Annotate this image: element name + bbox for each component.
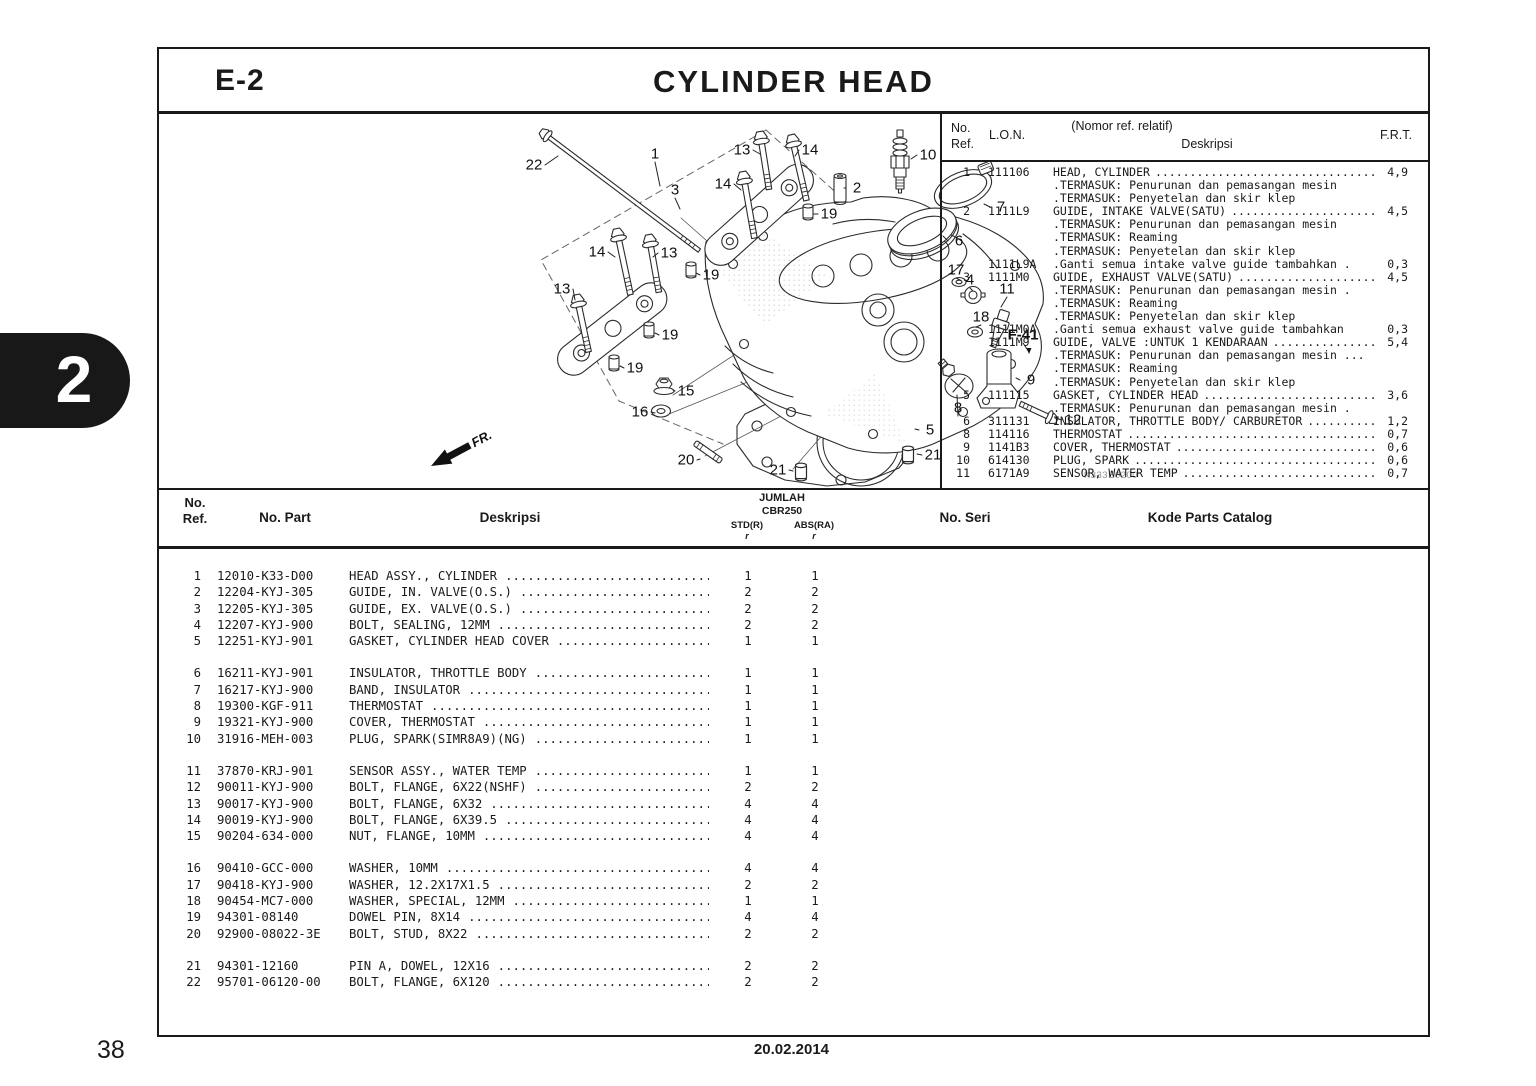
lon-sub-text: .TERMASUK: Penurunan dan pemasangan mesi… [1053,402,1351,415]
lon-desc: .TERMASUK: Penurunan dan pemasangan mesi… [1053,284,1380,297]
lon-frt [1380,376,1408,389]
lon-frt: 4,5 [1380,271,1408,284]
lon-desc-text: SENSOR, WATER TEMP [1053,467,1178,480]
dot-leader: ........................................… [535,665,709,681]
parts-desc: THERMOSTAT..............................… [349,698,709,714]
lon-code [988,179,1046,192]
parts-qty-std: 1 [723,698,773,714]
lon-sub-text: .TERMASUK: Penurunan dan pemasangan mesi… [1053,179,1337,192]
parts-ref: 4 [171,617,201,633]
parts-qty-std: 2 [723,974,773,990]
parts-col-abs: ABS(RA) [783,520,845,531]
parts-qty-std: 1 [723,763,773,779]
diagram-callout-label: 1 [651,146,659,163]
parts-row: 716217-KYJ-900BAND, INSULATOR...........… [159,682,1428,698]
parts-qty-std: 2 [723,958,773,974]
lon-code: 1111L9A [988,258,1046,271]
lon-sub-text: .TERMASUK: Reaming [1053,362,1178,375]
parts-number: 12251-KYJ-901 [217,633,349,649]
lon-desc-text: THERMOSTAT [1053,428,1122,441]
parts-desc: PLUG, SPARK(SIMR8A9)(NG)................… [349,731,709,747]
parts-row: 1994301-08140DOWEL PIN, 8X14............… [159,909,1428,925]
dot-leader: ........................................… [490,796,709,812]
lon-col-frt: F.R.T. [1380,128,1412,142]
parts-ref: 13 [171,796,201,812]
parts-desc: SENSOR ASSY., WATER TEMP................… [349,763,709,779]
lon-desc: .TERMASUK: Penurunan dan pemasangan mesi… [1053,349,1380,362]
lon-code [988,402,1046,415]
lon-subrow: .TERMASUK: Reaming [942,362,1428,375]
dot-leader: ........................................… [535,731,709,747]
lon-desc-text: .Ganti semua intake valve guide tambahka… [1053,258,1351,271]
svg-text:FR.: FR. [469,427,495,450]
lon-frt [1380,245,1408,258]
parts-desc-text: GUIDE, EX. VALVE(O.S.) [349,601,512,617]
parts-qty-abs: 4 [790,812,840,828]
lon-frt: 1,2 [1380,415,1408,428]
parts-ref: 22 [171,974,201,990]
lon-sub-text: .TERMASUK: Penyetelan dan skir klep [1053,245,1295,258]
lon-desc: COVER, THERMOSTAT.......................… [1053,441,1380,454]
parts-desc-text: BOLT, FLANGE, 6X32 [349,796,482,812]
parts-ref: 11 [171,763,201,779]
lon-code [988,349,1046,362]
lon-desc: GUIDE, EXHAUST VALVE(SATU)..............… [1053,271,1380,284]
lon-ref [942,245,970,258]
parts-qty-abs: 2 [790,958,840,974]
lon-code: 1111M0 [988,271,1046,284]
lon-ref: 3 [942,271,970,284]
lon-subrow: .TERMASUK: Penyetelan dan skir klep [942,376,1428,389]
lon-desc-text: GUIDE, VALVE :UNTUK 1 KENDARAAN [1053,336,1268,349]
lon-row: 21111L9GUIDE, INTAKE VALVE(SATU)........… [942,205,1428,218]
callout-leader [545,156,558,165]
parts-ref: 10 [171,731,201,747]
lon-subrow: .TERMASUK: Penurunan dan pemasangan mesi… [942,218,1428,231]
parts-desc: PIN A, DOWEL, 12X16.....................… [349,958,709,974]
parts-number: 94301-08140 [217,909,349,925]
lon-row: 5111115GASKET, CYLINDER HEAD............… [942,389,1428,402]
lon-col-ref: No.Ref. [951,120,974,152]
parts-row: 1590204-634-000NUT, FLANGE, 10MM........… [159,828,1428,844]
lon-row: 8114116THERMOSTAT.......................… [942,428,1428,441]
parts-ref: 15 [171,828,201,844]
lon-ref: 11 [942,467,970,480]
callout-leader [620,366,624,368]
lon-code [988,376,1046,389]
dot-leader: ........................................… [1238,271,1376,284]
parts-desc: GUIDE, IN. VALVE(O.S.)..................… [349,584,709,600]
lon-desc: .Ganti semua exhaust valve guide tambahk… [1053,323,1380,336]
lon-col-nomor: (Nomor ref. relatif) [1042,119,1202,133]
parts-ref: 14 [171,812,201,828]
lon-frt [1380,284,1408,297]
parts-qty-abs: 4 [790,860,840,876]
lon-desc-text: HEAD, CYLINDER [1053,166,1150,179]
dot-leader: ........................................… [498,877,709,893]
lon-row: 31111M0GUIDE, EXHAUST VALVE(SATU).......… [942,271,1428,284]
lon-ref [942,402,970,415]
lon-desc: HEAD, CYLINDER..........................… [1053,166,1380,179]
parts-qty-abs: 1 [790,763,840,779]
callout-leader [917,454,922,455]
parts-qty-std: 1 [723,682,773,698]
lon-subrow: .TERMASUK: Penurunan dan pemasangan mesi… [942,349,1428,362]
diagram-callout-label: 16 [632,404,649,421]
lon-desc: .TERMASUK: Reaming [1053,362,1380,375]
lon-sub-text: .TERMASUK: Penurunan dan pemasangan mesi… [1053,284,1351,297]
lon-desc-text: GASKET, CYLINDER HEAD [1053,389,1198,402]
lon-ref [942,284,970,297]
valve-guide-drawing [834,174,846,205]
parts-number: 90019-KYJ-900 [217,812,349,828]
parts-row: 112010-K33-D00HEAD ASSY., CYLINDER......… [159,568,1428,584]
lon-subrow: .TERMASUK: Penyetelan dan skir klep [942,245,1428,258]
parts-qty-std: 2 [723,584,773,600]
parts-qty-std: 4 [723,812,773,828]
dot-leader: ........................................… [520,584,709,600]
lon-ref [942,362,970,375]
dot-leader: ........................................… [1183,467,1376,480]
dot-leader: ........................................… [498,974,709,990]
parts-desc: DOWEL PIN, 8X14.........................… [349,909,709,925]
lon-row: 1111L9A.Ganti semua intake valve guide t… [942,258,1428,271]
title-bar: E-2 CYLINDER HEAD [159,49,1428,114]
dot-leader: ........................................… [1134,454,1376,467]
parts-desc: BOLT, FLANGE, 6X120.....................… [349,974,709,990]
parts-row: 919321-KYJ-900COVER, THERMOSTAT.........… [159,714,1428,730]
lon-desc: .TERMASUK: Reaming [1053,297,1380,310]
dot-leader: ........................................… [1127,428,1376,441]
parts-number: 94301-12160 [217,958,349,974]
parts-desc: WASHER, 10MM............................… [349,860,709,876]
parts-row: 312205-KYJ-305GUIDE, EX. VALVE(O.S.)....… [159,601,1428,617]
dot-leader [1349,323,1376,336]
lon-desc-text: GUIDE, INTAKE VALVE(SATU) [1053,205,1226,218]
lon-ref [942,218,970,231]
parts-number: 12010-K33-D00 [217,568,349,584]
parts-desc: BOLT, FLANGE, 6X39.5....................… [349,812,709,828]
callout-leader [697,459,700,460]
diagram-callout-label: 15 [678,383,695,400]
diagram-callout-label: 22 [526,157,543,174]
parts-desc-text: BOLT, FLANGE, 6X120 [349,974,490,990]
dot-leader: ........................................… [1273,336,1376,349]
parts-qty-std: 1 [723,665,773,681]
parts-col-kode: Kode Parts Catalog [1110,510,1310,525]
lon-frt [1380,218,1408,231]
parts-desc: GUIDE, EX. VALVE(O.S.)..................… [349,601,709,617]
parts-number: 90204-634-000 [217,828,349,844]
parts-qty-std: 1 [723,568,773,584]
lon-desc: .Ganti semua intake valve guide tambahka… [1053,258,1380,271]
parts-desc-text: INSULATOR, THROTTLE BODY [349,665,527,681]
lon-code [988,297,1046,310]
parts-desc: COVER, THERMOSTAT.......................… [349,714,709,730]
callout-leader [608,252,615,257]
parts-ref: 7 [171,682,201,698]
lon-code [988,362,1046,375]
parts-number: 90410-GCC-000 [217,860,349,876]
parts-number: 12207-KYJ-900 [217,617,349,633]
parts-number: 31916-MEH-003 [217,731,349,747]
lon-frt: 4,5 [1380,205,1408,218]
parts-qty-abs: 2 [790,779,840,795]
parts-desc: WASHER, SPECIAL, 12MM...................… [349,893,709,909]
parts-desc-text: NUT, FLANGE, 10MM [349,828,475,844]
lon-desc: INSULATOR, THROTTLE BODY/ CARBURETOR....… [1053,415,1380,428]
callout-leader [655,162,660,186]
parts-desc-text: BOLT, SEALING, 12MM [349,617,490,633]
lon-rows: 1111106HEAD, CYLINDER...................… [942,162,1428,480]
parts-number: 92900-08022-3E [217,926,349,942]
lon-code: 311131 [988,415,1046,428]
dot-leader: ........................................… [483,714,709,730]
parts-qty-std: 2 [723,617,773,633]
lon-subrow: .TERMASUK: Reaming [942,231,1428,244]
parts-qty-abs: 1 [790,682,840,698]
parts-row: 1790418-KYJ-900WASHER, 12.2X17X1.5......… [159,877,1428,893]
diagram-callout-label: 14 [589,244,606,261]
parts-row: 616211-KYJ-901INSULATOR, THROTTLE BODY..… [159,665,1428,681]
diagram-callout-label: 21 [770,462,787,479]
dot-leader: ........................................… [505,812,709,828]
lon-frt [1380,402,1408,415]
parts-qty-abs: 1 [790,698,840,714]
parts-qty-abs: 4 [790,828,840,844]
lon-frt: 0,7 [1380,428,1408,441]
parts-ref: 12 [171,779,201,795]
parts-col-part: No. Part [223,510,347,525]
parts-qty-std: 2 [723,877,773,893]
lon-frt: 4,9 [1380,166,1408,179]
lon-sub-text: .TERMASUK: Penurunan dan pemasangan mesi… [1053,349,1365,362]
lon-code [988,218,1046,231]
parts-desc: NUT, FLANGE, 10MM.......................… [349,828,709,844]
lon-sub-text: .TERMASUK: Penyetelan dan skir klep [1053,310,1295,323]
parts-col-ref: No.Ref. [173,495,217,527]
parts-row: 1290011-KYJ-900BOLT, FLANGE, 6X22(NSHF).… [159,779,1428,795]
lon-row: 1111106HEAD, CYLINDER...................… [942,166,1428,179]
parts-col-seri: No. Seri [885,510,1045,525]
lon-frt [1380,297,1408,310]
dot-leader: ........................................… [535,779,709,795]
lon-code: 114116 [988,428,1046,441]
parts-number: 90454-MC7-000 [217,893,349,909]
lon-col-lon: L.O.N. [989,128,1025,142]
lon-code: 111115 [988,389,1046,402]
page-title: CYLINDER HEAD [159,64,1428,100]
dot-leader: ........................................… [1307,415,1376,428]
parts-ref: 20 [171,926,201,942]
parts-table-header: No.Ref. No. Part Deskripsi JUMLAH CBR250… [159,490,1428,549]
lon-ref [942,179,970,192]
lon-ref: 2 [942,205,970,218]
parts-row: 1890454-MC7-000WASHER, SPECIAL, 12MM....… [159,893,1428,909]
lon-code: 1111L9 [988,205,1046,218]
lon-desc: GUIDE, INTAKE VALVE(SATU)...............… [1053,205,1380,218]
lon-desc: .TERMASUK: Penyetelan dan skir klep [1053,310,1380,323]
parts-number: 19300-KGF-911 [217,698,349,714]
lon-code [988,284,1046,297]
parts-ref: 6 [171,665,201,681]
parts-desc-text: BOLT, STUD, 8X22 [349,926,467,942]
lon-frt [1380,362,1408,375]
parts-desc-text: PIN A, DOWEL, 12X16 [349,958,490,974]
parts-col-std-note: r [716,531,778,541]
parts-qty-std: 1 [723,633,773,649]
lon-frt [1380,179,1408,192]
callout-leader [675,198,680,209]
parts-row: 2194301-12160PIN A, DOWEL, 12X16........… [159,958,1428,974]
lon-frt: 5,4 [1380,336,1408,349]
parts-desc-text: COVER, THERMOSTAT [349,714,475,730]
lon-ref [942,376,970,389]
parts-rows: 112010-K33-D00HEAD ASSY., CYLINDER......… [159,549,1428,991]
dot-leader: ........................................… [512,893,709,909]
lon-frt [1380,231,1408,244]
dot-leader: ........................................… [475,926,709,942]
parts-desc-text: GUIDE, IN. VALVE(O.S.) [349,584,512,600]
lon-subrow: .TERMASUK: Penurunan dan pemasangan mesi… [942,284,1428,297]
dot-leader: ........................................… [505,568,709,584]
lon-desc: GASKET, CYLINDER HEAD...................… [1053,389,1380,402]
parts-row: 1690410-GCC-000WASHER, 10MM.............… [159,860,1428,876]
diagram-callout-label: 19 [627,360,644,377]
lon-row: 6311131INSULATOR, THROTTLE BODY/ CARBURE… [942,415,1428,428]
parts-qty-std: 4 [723,860,773,876]
parts-number: 95701-06120-00 [217,974,349,990]
date-stamp: 20.02.2014 [157,1041,1426,1058]
parts-desc: HEAD ASSY., CYLINDER....................… [349,568,709,584]
parts-qty-abs: 4 [790,909,840,925]
lon-desc: SENSOR, WATER TEMP......................… [1053,467,1380,480]
dot-leader: ........................................… [498,617,709,633]
diagram-callout-label: 14 [715,176,732,193]
lon-desc: .TERMASUK: Reaming [1053,231,1380,244]
parts-desc-text: WASHER, SPECIAL, 12MM [349,893,504,909]
parts-ref: 8 [171,698,201,714]
lon-desc: THERMOSTAT..............................… [1053,428,1380,441]
parts-qty-abs: 2 [790,926,840,942]
parts-desc: INSULATOR, THROTTLE BODY................… [349,665,709,681]
parts-desc: BAND, INSULATOR.........................… [349,682,709,698]
parts-qty-abs: 1 [790,731,840,747]
chapter-tab: 2 [0,333,130,428]
parts-ref: 16 [171,860,201,876]
parts-qty-abs: 2 [790,617,840,633]
lon-desc: PLUG, SPARK.............................… [1053,454,1380,467]
lon-ref [942,310,970,323]
parts-col-desc: Deskripsi [448,510,572,525]
lon-row: 1111M9GUIDE, VALVE :UNTUK 1 KENDARAAN...… [942,336,1428,349]
parts-number: 90017-KYJ-900 [217,796,349,812]
dot-leader: ........................................… [498,958,709,974]
spark-plug-drawing [891,130,909,193]
diagram-callout-label: 21 [925,447,942,464]
lon-desc: .TERMASUK: Penurunan dan pemasangan mesi… [1053,218,1380,231]
callout-leader [753,150,760,154]
lon-code: 111106 [988,166,1046,179]
flange-nut-drawing [654,378,674,395]
dot-leader [1356,258,1376,271]
lon-ref: 1 [942,166,970,179]
parts-number: 90011-KYJ-900 [217,779,349,795]
parts-desc: BOLT, FLANGE, 6X32......................… [349,796,709,812]
parts-qty-std: 1 [723,893,773,909]
lon-desc-text: GUIDE, EXHAUST VALVE(SATU) [1053,271,1233,284]
parts-qty-abs: 1 [790,633,840,649]
lon-code [988,231,1046,244]
lon-desc: .TERMASUK: Penurunan dan pemasangan mesi… [1053,179,1380,192]
diagram-callout-label: 3 [671,182,679,199]
lon-code: 6171A9 [988,467,1046,480]
diagram-callout-label: 13 [734,142,751,159]
dot-leader: ........................................… [446,860,709,876]
diagram-callout-label: 2 [853,180,861,197]
parts-row: 2092900-08022-3EBOLT, STUD, 8X22........… [159,926,1428,942]
parts-qty-std: 4 [723,909,773,925]
parts-row: 1031916-MEH-003PLUG, SPARK(SIMR8A9)(NG).… [159,731,1428,747]
parts-number: 37870-KRJ-901 [217,763,349,779]
parts-number: 90418-KYJ-900 [217,877,349,893]
lon-desc-text: COVER, THERMOSTAT [1053,441,1171,454]
lon-ref [942,349,970,362]
parts-ref: 19 [171,909,201,925]
dot-leader: ........................................… [535,763,709,779]
parts-qty-abs: 2 [790,601,840,617]
parts-desc-text: THERMOSTAT [349,698,423,714]
parts-desc: BOLT, SEALING, 12MM.....................… [349,617,709,633]
dot-leader: ........................................… [431,698,709,714]
parts-desc: BOLT, STUD, 8X22........................… [349,926,709,942]
lon-code: 1111M9 [988,336,1046,349]
lon-desc: .TERMASUK: Penyetelan dan skir klep [1053,376,1380,389]
diagram-callout-label: 13 [661,245,678,262]
dot-leader: ........................................… [468,682,709,698]
parts-qty-abs: 2 [790,974,840,990]
lon-sub-text: .TERMASUK: Penyetelan dan skir klep [1053,376,1295,389]
parts-qty-std: 1 [723,714,773,730]
dot-leader: ........................................… [557,633,709,649]
diagram-callout-label: 14 [802,142,819,159]
parts-row: 819300-KGF-911THERMOSTAT................… [159,698,1428,714]
parts-qty-abs: 1 [790,665,840,681]
page-number: 38 [97,1036,125,1065]
parts-ref: 21 [171,958,201,974]
parts-qty-std: 4 [723,828,773,844]
catalog-page: 2 38 20.02.2014 E-2 CYLINDER HEAD [0,0,1536,1086]
parts-qty-std: 1 [723,731,773,747]
dot-leader: ........................................… [468,909,709,925]
diagram-callout-label: 19 [662,327,679,344]
lon-ref [942,323,970,336]
lon-desc-text: PLUG, SPARK [1053,454,1129,467]
lon-sub-text: .TERMASUK: Penyetelan dan skir klep [1053,192,1295,205]
parts-row: 412207-KYJ-900BOLT, SEALING, 12MM.......… [159,617,1428,633]
dot-leader: ........................................… [1176,441,1376,454]
parts-qty-abs: 1 [790,568,840,584]
dot-leader: ........................................… [520,601,709,617]
parts-row: 1490019-KYJ-900BOLT, FLANGE, 6X39.5.....… [159,812,1428,828]
parts-row: 2295701-06120-00BOLT, FLANGE, 6X120.....… [159,974,1428,990]
lon-ref [942,258,970,271]
parts-ref: 3 [171,601,201,617]
parts-col-model: CBR250 [740,505,824,517]
parts-number: 12205-KYJ-305 [217,601,349,617]
parts-row: 512251-KYJ-901GASKET, CYLINDER HEAD COVE… [159,633,1428,649]
diagram-callout-label: 10 [920,147,937,164]
